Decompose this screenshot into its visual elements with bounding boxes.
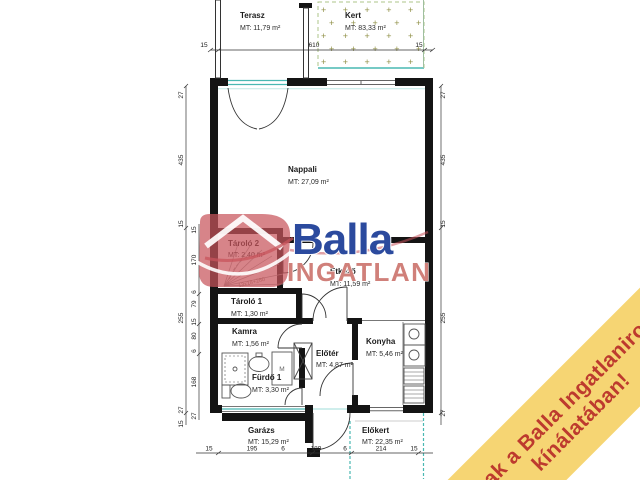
- kitchen-fixtures: [362, 321, 425, 406]
- room-label-konyha: Konyha: [366, 337, 396, 346]
- dim-label: 15: [178, 220, 185, 228]
- room-label-kamra: Kamra: [232, 327, 257, 336]
- dim-label: 214: [376, 446, 387, 453]
- dim-label: 15: [178, 420, 185, 428]
- dim-label: 15: [200, 42, 208, 49]
- room-mt-elokert: MT: 22,35 m²: [362, 439, 404, 446]
- dim-label: 6: [343, 446, 347, 453]
- dim-label: 168: [191, 376, 198, 387]
- room-label-eloter: Előtér: [316, 349, 339, 358]
- dimension-labels-bottom: 15 195 6 189 6 214 15: [205, 446, 418, 453]
- dim-label: 15: [205, 446, 213, 453]
- logo-house-icon: [199, 214, 290, 287]
- dim-label: 195: [247, 446, 258, 453]
- room-label-tarolo1: Tároló 1: [231, 297, 263, 306]
- room-mt-tarolo1: MT: 1,30 m²: [231, 311, 269, 318]
- dim-label: 15: [440, 220, 447, 228]
- dim-label: 189: [311, 446, 322, 453]
- dim-label: 79: [191, 300, 198, 308]
- dim-label: 27: [178, 91, 185, 99]
- room-mt-nappali: MT: 27,09 m²: [288, 179, 330, 186]
- dimension-labels-left-outer: 27 435 15 255 27 15: [178, 91, 185, 428]
- room-mt-garazs: MT: 15,29 m²: [248, 439, 290, 446]
- room-label-nappali: Nappali: [288, 165, 317, 174]
- kert-border: [318, 0, 424, 68]
- room-label-furdo1: Fürdő 1: [252, 373, 282, 382]
- dimension-labels-left-inner: 15 170 6 79 15 80 6 168 27: [191, 226, 198, 420]
- dim-label: 27: [178, 406, 185, 414]
- room-label-terasz: Terasz: [240, 11, 265, 20]
- room-mt-kamra: MT: 1,56 m²: [232, 341, 270, 348]
- dim-label: 6: [191, 349, 198, 353]
- washing-machine-label: M: [279, 366, 284, 373]
- logo-subtitle-text: INGATLAN: [287, 257, 431, 287]
- dim-label: 15: [191, 318, 198, 326]
- room-label-garazs: Garázs: [248, 426, 275, 435]
- room-mt-eloter: MT: 4,87 m²: [316, 362, 354, 369]
- dim-label: 15: [191, 226, 198, 234]
- room-mt-terasz: MT: 11,79 m²: [240, 25, 281, 32]
- dim-label: 6: [191, 290, 198, 294]
- dim-label: 435: [440, 154, 447, 165]
- dim-label: 255: [440, 312, 447, 323]
- room-mt-kert: MT: 83,33 m²: [345, 25, 387, 32]
- dim-label: 6: [281, 446, 285, 453]
- dim-label: 27: [440, 409, 447, 417]
- dim-label: 610: [309, 42, 320, 49]
- dim-label: 80: [191, 332, 198, 340]
- room-label-kert: Kert: [345, 11, 361, 20]
- dim-label: 15: [410, 446, 418, 453]
- dim-label: 255: [178, 312, 185, 323]
- room-label-elokert: Előkert: [362, 426, 389, 435]
- dimension-labels-top: 15 610 15: [200, 42, 423, 49]
- dim-label: 435: [178, 154, 185, 165]
- floorplan-page: + + + + + + ++ + + + + + ++ + + + + + ++…: [0, 0, 640, 480]
- room-mt-furdo1: MT: 3,30 m²: [252, 387, 290, 394]
- dim-label: 15: [415, 42, 423, 49]
- room-mt-konyha: MT: 5,46 m²: [366, 351, 404, 358]
- dim-label: 27: [440, 91, 447, 99]
- balla-logo: Balla INGATLAN: [197, 214, 431, 287]
- dim-label: 27: [191, 412, 198, 420]
